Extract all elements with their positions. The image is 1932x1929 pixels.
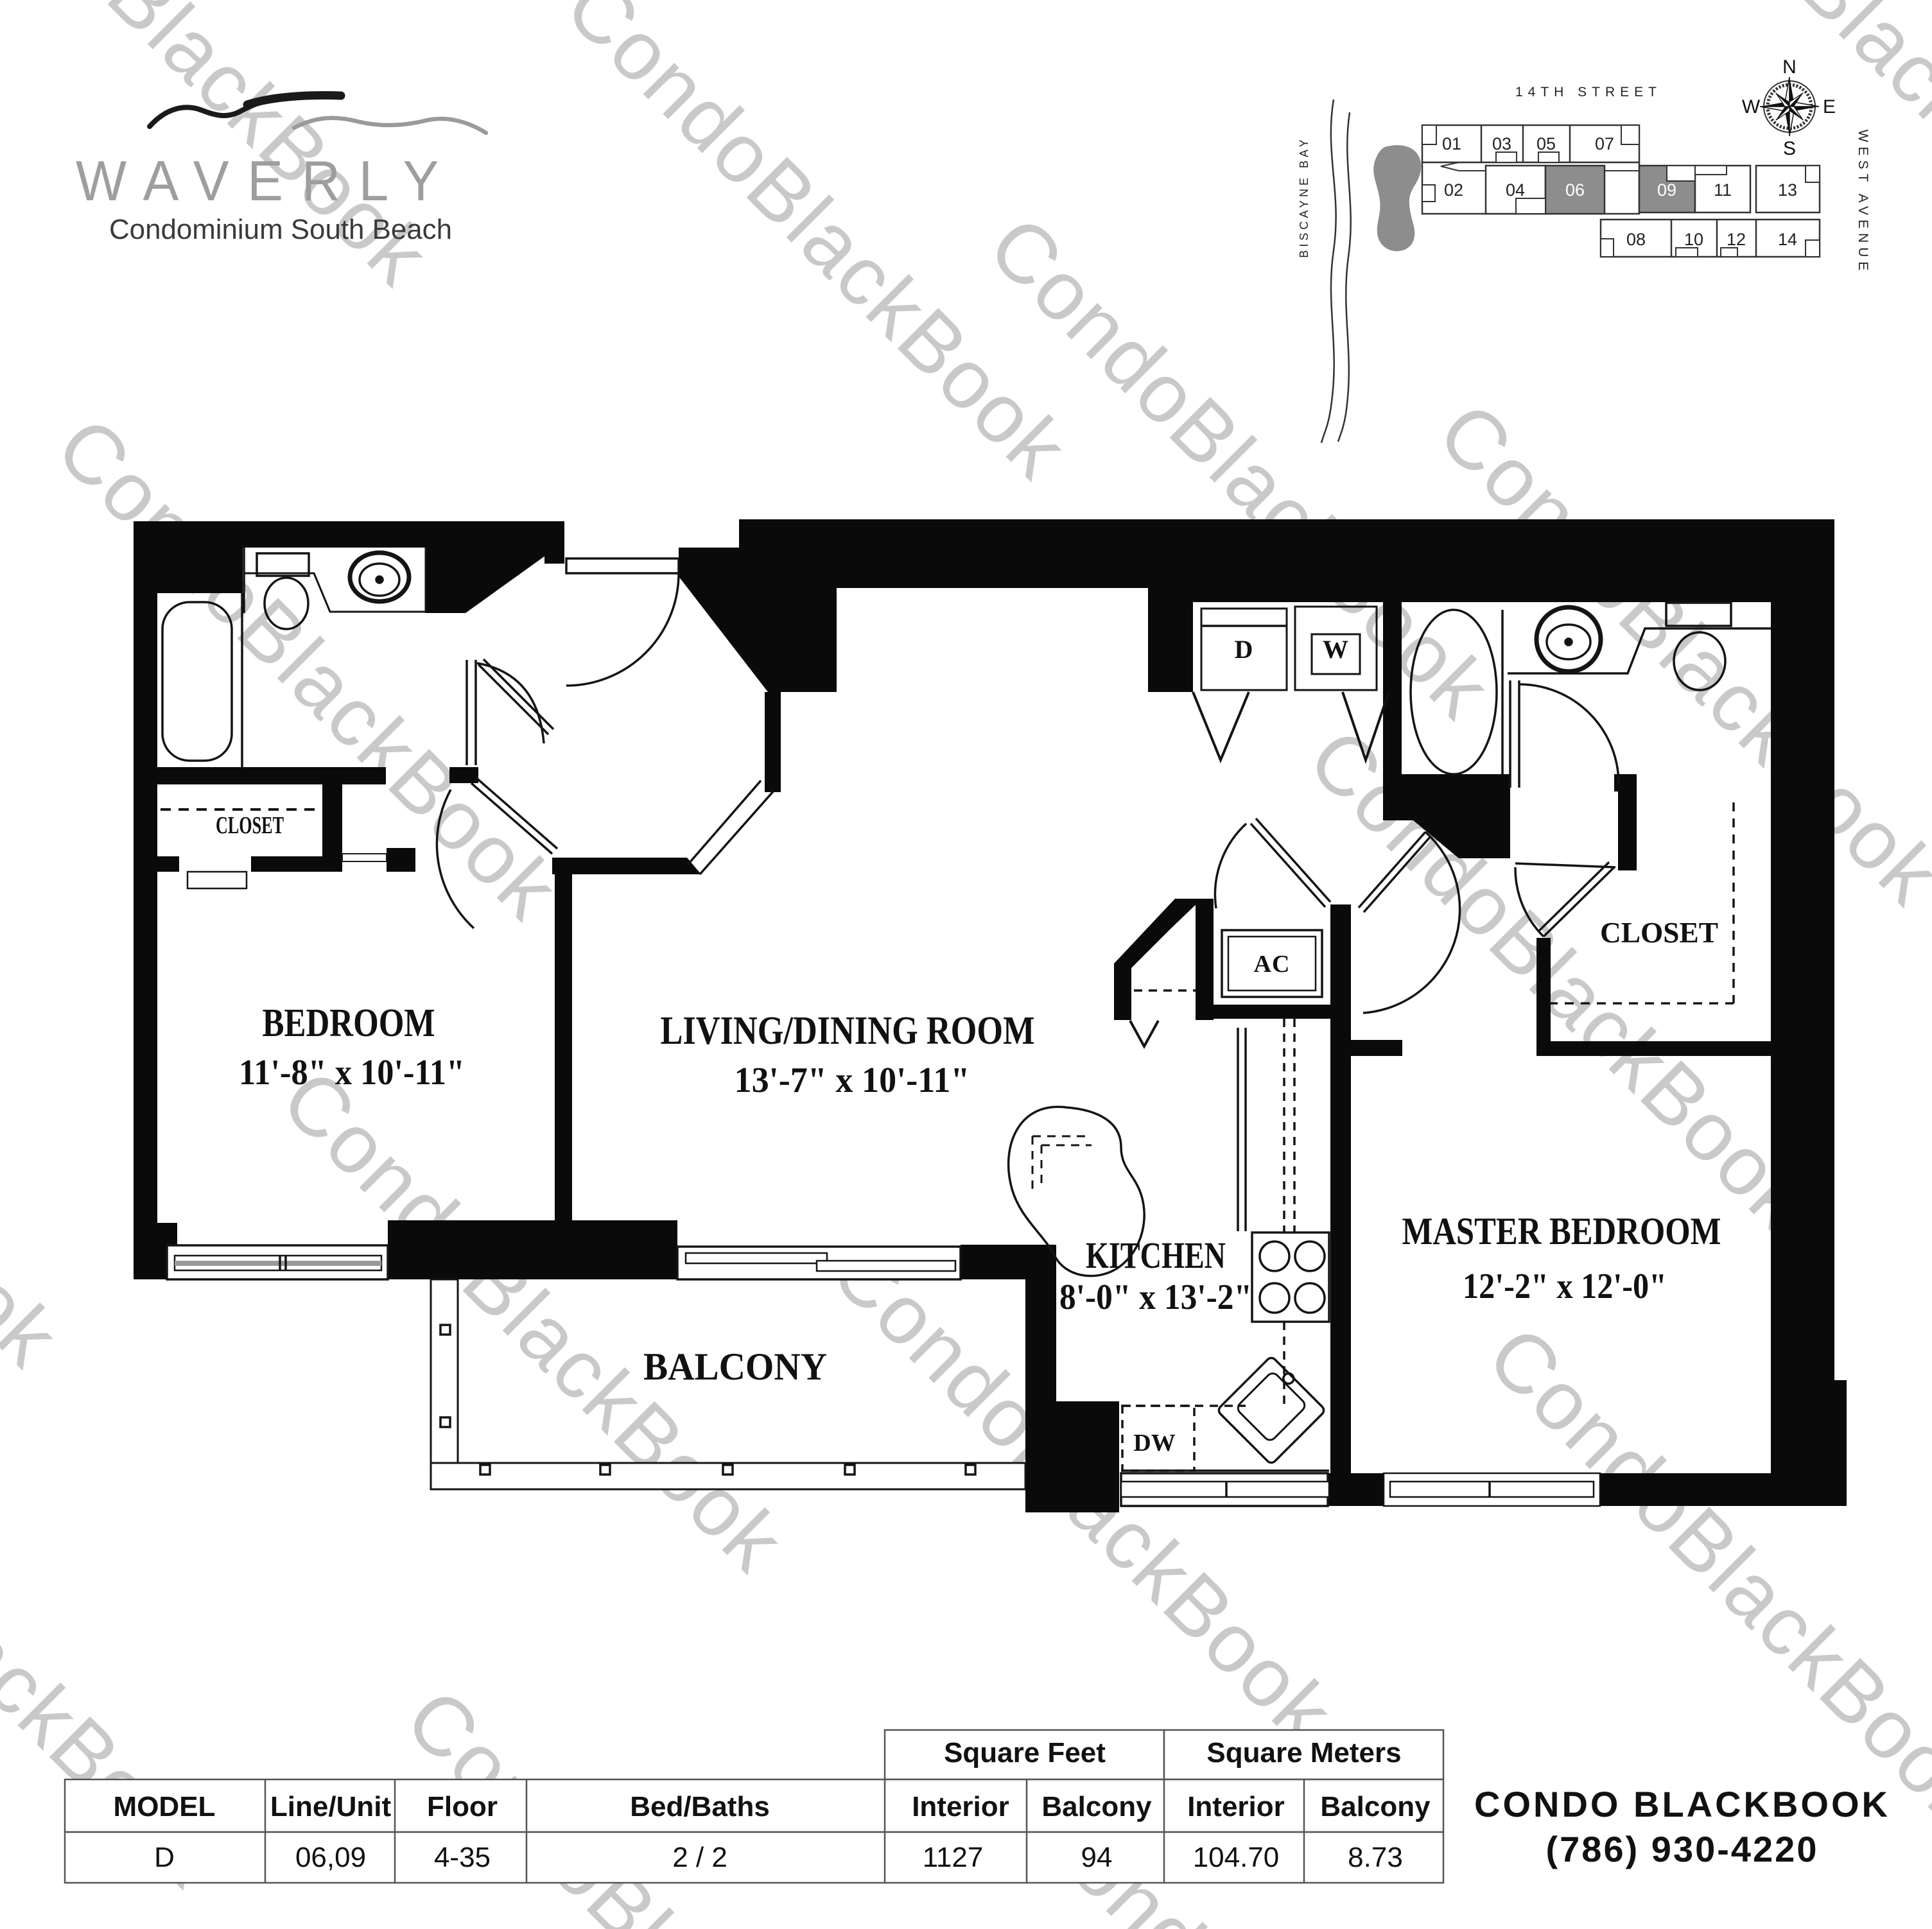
- svg-text:94: 94: [1081, 1842, 1113, 1873]
- svg-text:Line/Unit: Line/Unit: [270, 1791, 392, 1822]
- svg-text:W: W: [1742, 96, 1761, 117]
- svg-text:01: 01: [1442, 134, 1461, 153]
- svg-text:09: 09: [1657, 180, 1676, 200]
- svg-text:14: 14: [1778, 230, 1797, 249]
- svg-text:06: 06: [1565, 180, 1585, 200]
- svg-text:S: S: [1783, 138, 1796, 159]
- svg-text:Square Feet: Square Feet: [944, 1737, 1106, 1769]
- svg-text:11: 11: [1714, 180, 1732, 200]
- svg-text:1127: 1127: [923, 1842, 984, 1873]
- svg-text:06,09: 06,09: [295, 1842, 366, 1873]
- svg-text:WAVERLY: WAVERLY: [76, 149, 457, 212]
- svg-text:MASTER BEDROOM: MASTER BEDROOM: [1402, 1210, 1721, 1252]
- svg-text:11'-8" x 10'-11": 11'-8" x 10'-11": [239, 1053, 465, 1093]
- svg-text:Balcony: Balcony: [1320, 1791, 1431, 1822]
- svg-text:Bed/Baths: Bed/Baths: [630, 1791, 770, 1822]
- svg-text:D: D: [1235, 635, 1253, 664]
- svg-text:CLOSET: CLOSET: [216, 812, 284, 839]
- svg-text:(786) 930-4220: (786) 930-4220: [1546, 1829, 1819, 1869]
- svg-text:CLOSET: CLOSET: [1600, 916, 1718, 949]
- svg-text:02: 02: [1444, 180, 1463, 200]
- svg-text:2 / 2: 2 / 2: [672, 1842, 727, 1873]
- svg-text:12: 12: [1727, 230, 1746, 249]
- svg-text:04: 04: [1506, 180, 1525, 200]
- svg-text:13'-7" x 10'-11": 13'-7" x 10'-11": [735, 1060, 970, 1100]
- svg-text:D: D: [154, 1842, 175, 1873]
- svg-text:Interior: Interior: [912, 1791, 1009, 1822]
- svg-text:07: 07: [1595, 134, 1614, 153]
- svg-text:LIVING/DINING ROOM: LIVING/DINING ROOM: [661, 1009, 1035, 1053]
- svg-text:Floor: Floor: [427, 1791, 498, 1822]
- svg-text:CONDO BLACKBOOK: CONDO BLACKBOOK: [1474, 1784, 1890, 1824]
- svg-text:BALCONY: BALCONY: [643, 1345, 827, 1388]
- svg-text:W: W: [1323, 635, 1348, 664]
- svg-text:Interior: Interior: [1187, 1791, 1285, 1822]
- svg-text:12'-2" x 12'-0": 12'-2" x 12'-0": [1463, 1267, 1667, 1306]
- svg-text:4-35: 4-35: [434, 1842, 491, 1873]
- svg-text:E: E: [1823, 96, 1836, 117]
- svg-text:KITCHEN: KITCHEN: [1086, 1234, 1226, 1276]
- svg-text:13: 13: [1778, 180, 1797, 200]
- svg-text:05: 05: [1536, 134, 1556, 153]
- svg-text:BEDROOM: BEDROOM: [263, 1001, 435, 1045]
- svg-text:N: N: [1782, 56, 1797, 78]
- svg-text:BISCAYNE BAY: BISCAYNE BAY: [1298, 136, 1310, 257]
- svg-text:8.73: 8.73: [1348, 1842, 1403, 1873]
- svg-text:8'-0" x 13'-2": 8'-0" x 13'-2": [1059, 1277, 1252, 1317]
- svg-text:14TH STREET: 14TH STREET: [1515, 85, 1662, 99]
- svg-text:Balcony: Balcony: [1041, 1791, 1152, 1822]
- svg-text:Square Meters: Square Meters: [1206, 1737, 1401, 1769]
- svg-text:DW: DW: [1133, 1430, 1175, 1457]
- svg-text:104.70: 104.70: [1193, 1842, 1280, 1873]
- svg-text:WEST AVENUE: WEST AVENUE: [1856, 130, 1870, 275]
- svg-text:03: 03: [1492, 134, 1511, 153]
- svg-text:MODEL: MODEL: [114, 1791, 216, 1822]
- svg-text:10: 10: [1684, 230, 1703, 249]
- svg-text:08: 08: [1626, 230, 1646, 249]
- svg-text:Condominium South Beach: Condominium South Beach: [109, 214, 452, 245]
- svg-text:AC: AC: [1254, 951, 1291, 978]
